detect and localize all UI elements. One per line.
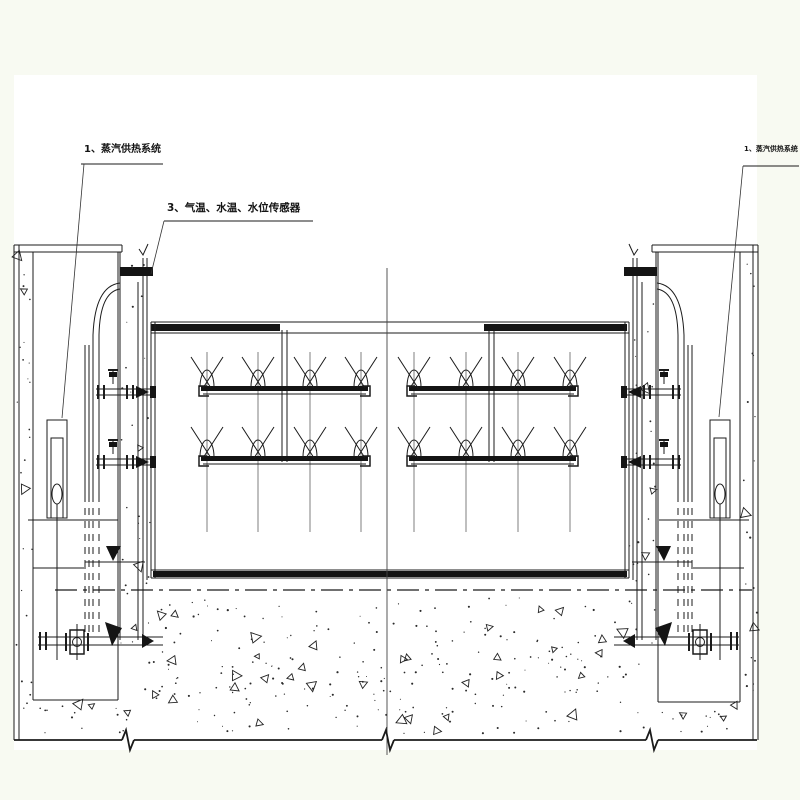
cad-drawing: 1、蒸汽供热系统 3、气温、水温、水位传感器 1、蒸汽供热系统 <box>0 0 800 800</box>
steam-manifold-right <box>484 324 627 331</box>
steam-manifold-left <box>151 324 280 331</box>
slot-entry-pipe <box>624 267 657 276</box>
paper-sheet <box>14 75 757 750</box>
slot-entry-pipe <box>120 267 153 276</box>
label-sensors: 3、气温、水温、水位传感器 <box>167 201 301 214</box>
drawing-canvas: 1、蒸汽供热系统 3、气温、水温、水位传感器 1、蒸汽供热系统 <box>0 0 800 800</box>
label-steam-system-right: 1、蒸汽供热系统 <box>744 144 798 153</box>
gate-bottom-sill <box>153 571 627 577</box>
label-steam-system-left: 1、蒸汽供热系统 <box>84 142 161 155</box>
